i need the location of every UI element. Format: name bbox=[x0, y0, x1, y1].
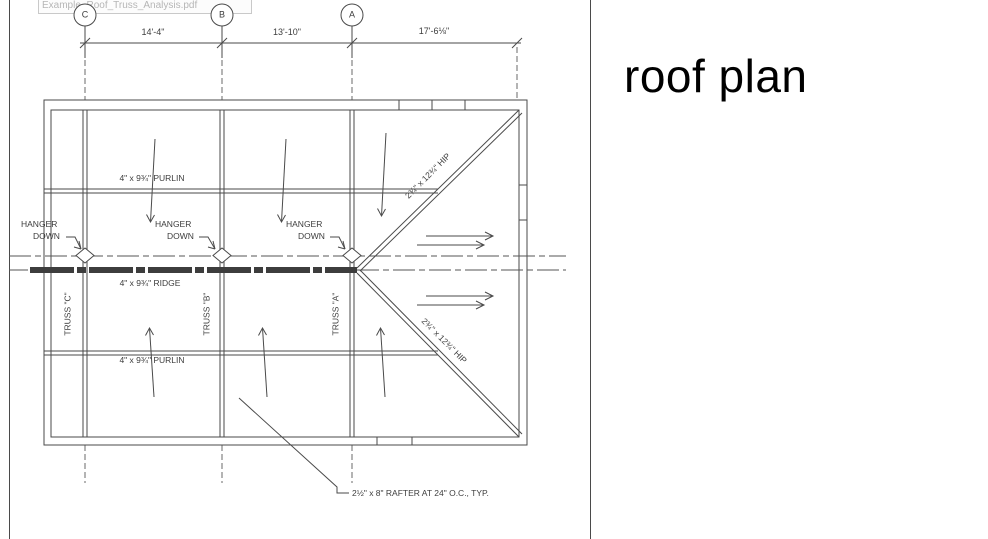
grid-bubble-a-label: A bbox=[349, 10, 355, 21]
dimension-label-c-b: 14'-4" bbox=[142, 27, 165, 38]
dimension-label-b-a: 13'-10" bbox=[273, 27, 301, 38]
grid-bubble-b-label: B bbox=[219, 10, 225, 21]
hanger-down-label-3-line2: DOWN bbox=[298, 231, 325, 242]
dimension-line bbox=[80, 38, 522, 48]
pdf-page: Example_Roof_Truss_Analysis.pdf bbox=[0, 0, 988, 539]
grid-extension-lines bbox=[85, 26, 517, 483]
hanger-down-label-2-line2: DOWN bbox=[167, 231, 194, 242]
truss-lines bbox=[83, 110, 354, 437]
dimension-label-a-wall: 17'-6⅛" bbox=[419, 26, 449, 37]
hanger-down-label-1-line1: HANGER bbox=[21, 219, 57, 230]
rafter-note: 2½" x 8" RAFTER AT 24" O.C., TYP. bbox=[352, 488, 489, 499]
hanger-down-label-3-line1: HANGER bbox=[286, 219, 322, 230]
truss-c-label: TRUSS "C" bbox=[63, 292, 74, 335]
grid-bubble-c-label: C bbox=[82, 10, 89, 21]
hanger-down-label-1-line2: DOWN bbox=[33, 231, 60, 242]
truss-b-label: TRUSS "B" bbox=[202, 293, 213, 336]
roof-plan-drawing bbox=[0, 0, 988, 539]
truss-a-label: TRUSS "A" bbox=[331, 293, 342, 336]
sheet-title: roof plan bbox=[624, 49, 808, 103]
ridge-label: 4" x 9¾" RIDGE bbox=[120, 278, 181, 289]
purlin-top-label: 4" x 9¾" PURLIN bbox=[119, 173, 184, 184]
hanger-down-label-2-line1: HANGER bbox=[155, 219, 191, 230]
purlin-bottom-label: 4" x 9¾" PURLIN bbox=[119, 355, 184, 366]
